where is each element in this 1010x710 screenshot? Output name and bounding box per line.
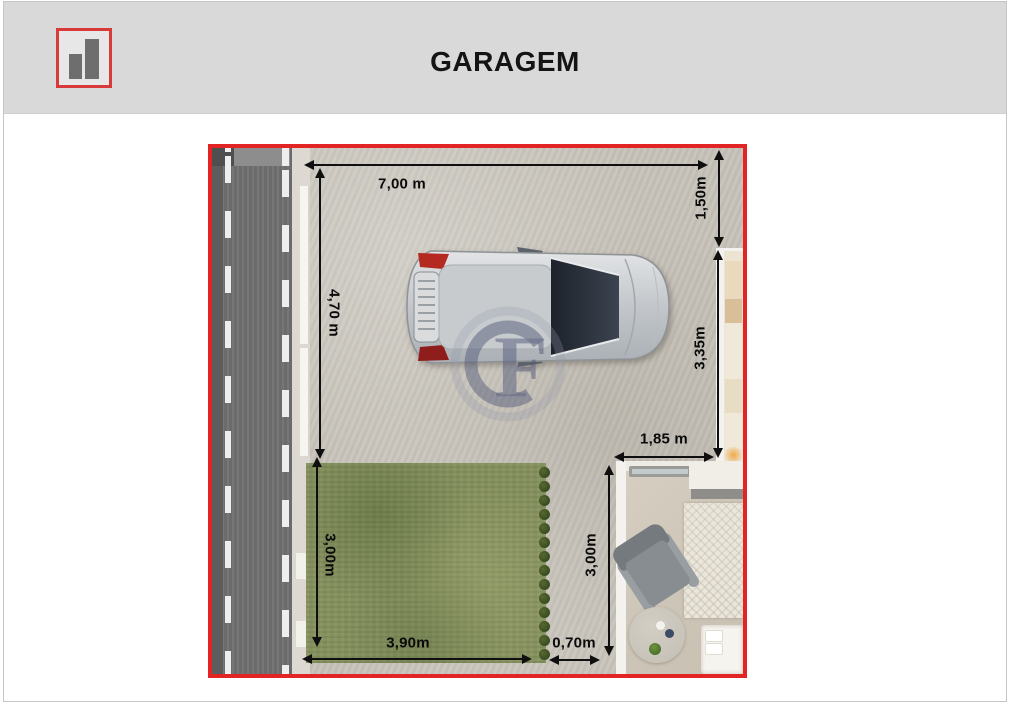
hedge bbox=[536, 464, 552, 662]
dim-arrow-garage-width bbox=[306, 164, 706, 166]
wall bbox=[689, 462, 743, 489]
dim-arrow-path-width bbox=[551, 659, 598, 661]
dim-label-path-width: 0,70m bbox=[552, 635, 596, 652]
dim-arrow-room-depth bbox=[608, 467, 610, 654]
bed bbox=[701, 625, 743, 674]
dim-label-patio-width: 1,85 m bbox=[640, 431, 688, 448]
garage-floor-plan: F 7,00 m 1,50m 4,70 m 3,35m 1,85 m 3,00m… bbox=[208, 144, 747, 678]
dim-arrow-lawn-width bbox=[304, 658, 530, 660]
dim-label-garage-depth: 4,70 m bbox=[326, 289, 343, 337]
lane-marking bbox=[225, 148, 231, 674]
svg-text:F: F bbox=[494, 319, 548, 416]
dim-arrow-garage-depth bbox=[319, 170, 321, 457]
street bbox=[212, 148, 292, 674]
dim-arrow-right-upper bbox=[718, 152, 720, 245]
side-corridor bbox=[724, 251, 743, 463]
dim-arrow-lawn-depth bbox=[316, 459, 318, 645]
plant bbox=[649, 643, 661, 655]
dim-label-lawn-depth: 3,00m bbox=[322, 533, 339, 577]
garage-door bbox=[300, 186, 310, 344]
corridor-furniture bbox=[725, 323, 742, 379]
corridor-furniture bbox=[725, 261, 742, 299]
dim-label-right-mid: 3,35m bbox=[692, 326, 709, 370]
sliding-door bbox=[629, 466, 691, 477]
mug bbox=[665, 629, 674, 638]
dim-label-lawn-width: 3,90m bbox=[386, 635, 430, 652]
round-rug bbox=[629, 607, 685, 663]
corridor-furniture bbox=[725, 379, 742, 413]
plate bbox=[656, 621, 665, 630]
page-title: GARAGEM bbox=[4, 46, 1006, 78]
area-rug bbox=[684, 503, 743, 618]
lane-marking bbox=[282, 148, 289, 674]
dim-label-garage-width: 7,00 m bbox=[378, 176, 426, 193]
garage-door bbox=[300, 348, 310, 456]
counter bbox=[691, 489, 743, 499]
corridor-furniture bbox=[725, 299, 742, 323]
dim-arrow-right-mid bbox=[717, 252, 719, 456]
corridor-furniture bbox=[725, 413, 742, 449]
header-bar: GARAGEM bbox=[4, 2, 1006, 114]
watermark-logo: F bbox=[448, 304, 568, 424]
slide: GARAGEM bbox=[3, 1, 1007, 702]
dim-label-room-depth: 3,00m bbox=[583, 533, 600, 577]
street-edge bbox=[212, 148, 223, 674]
lawn bbox=[306, 463, 546, 663]
dim-label-right-upper: 1,50m bbox=[693, 176, 710, 220]
dim-arrow-patio-width bbox=[616, 456, 712, 458]
